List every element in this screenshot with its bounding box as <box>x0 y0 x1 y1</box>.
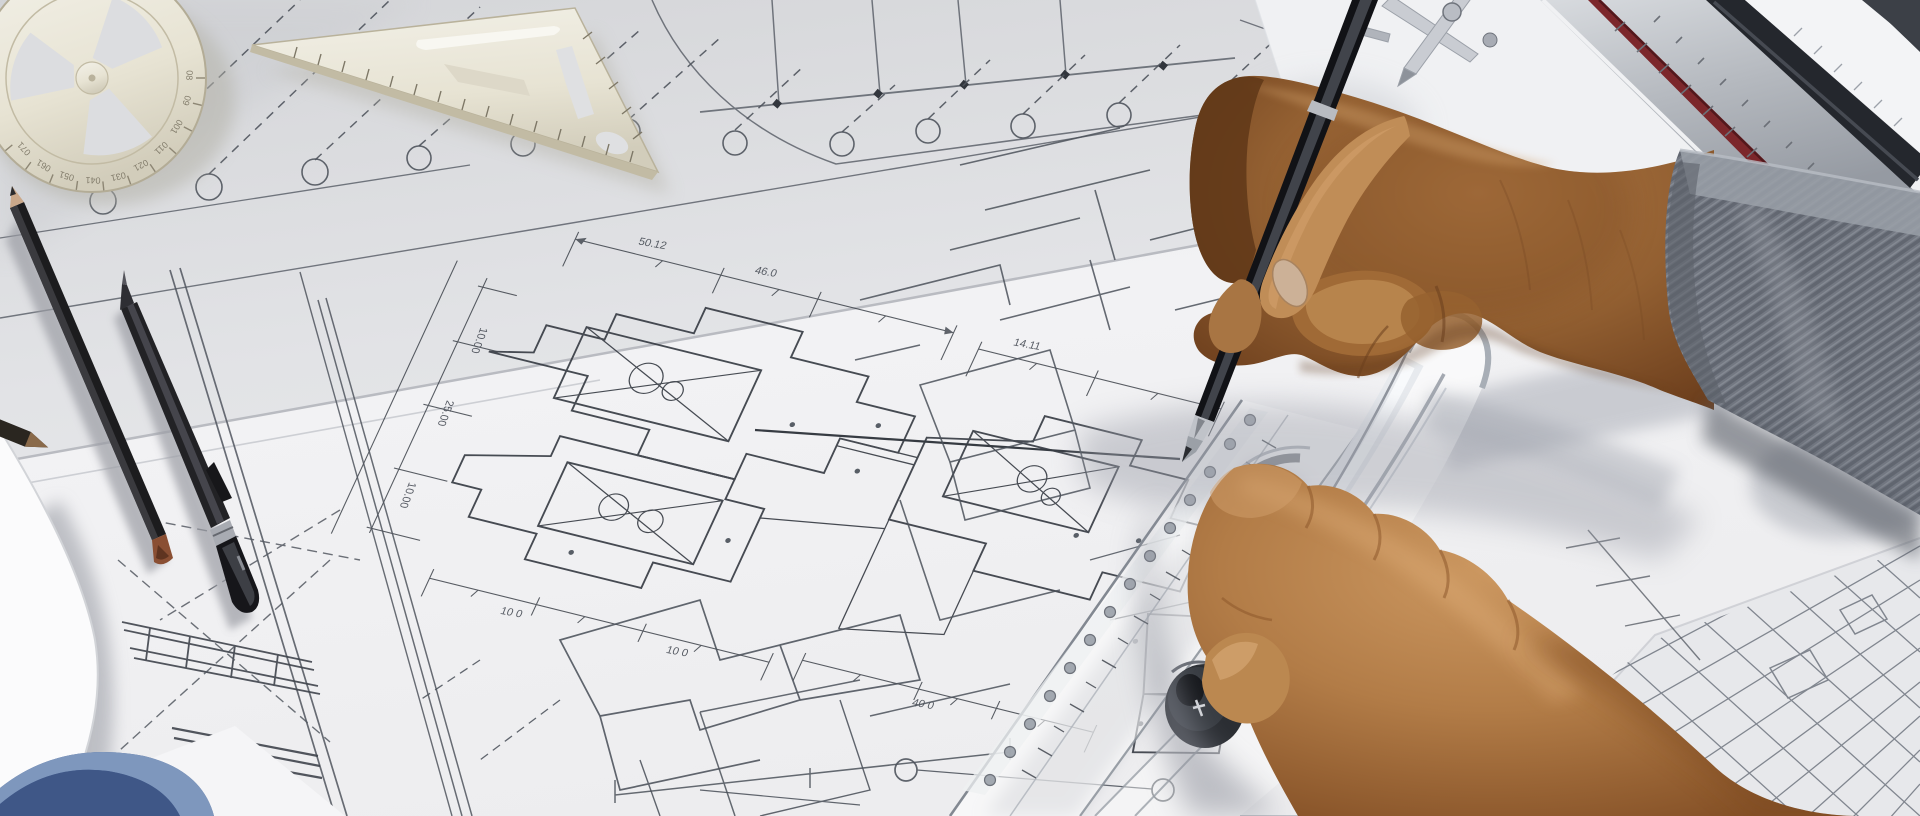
svg-text:041: 041 <box>85 175 100 186</box>
svg-text:08: 08 <box>184 70 194 80</box>
